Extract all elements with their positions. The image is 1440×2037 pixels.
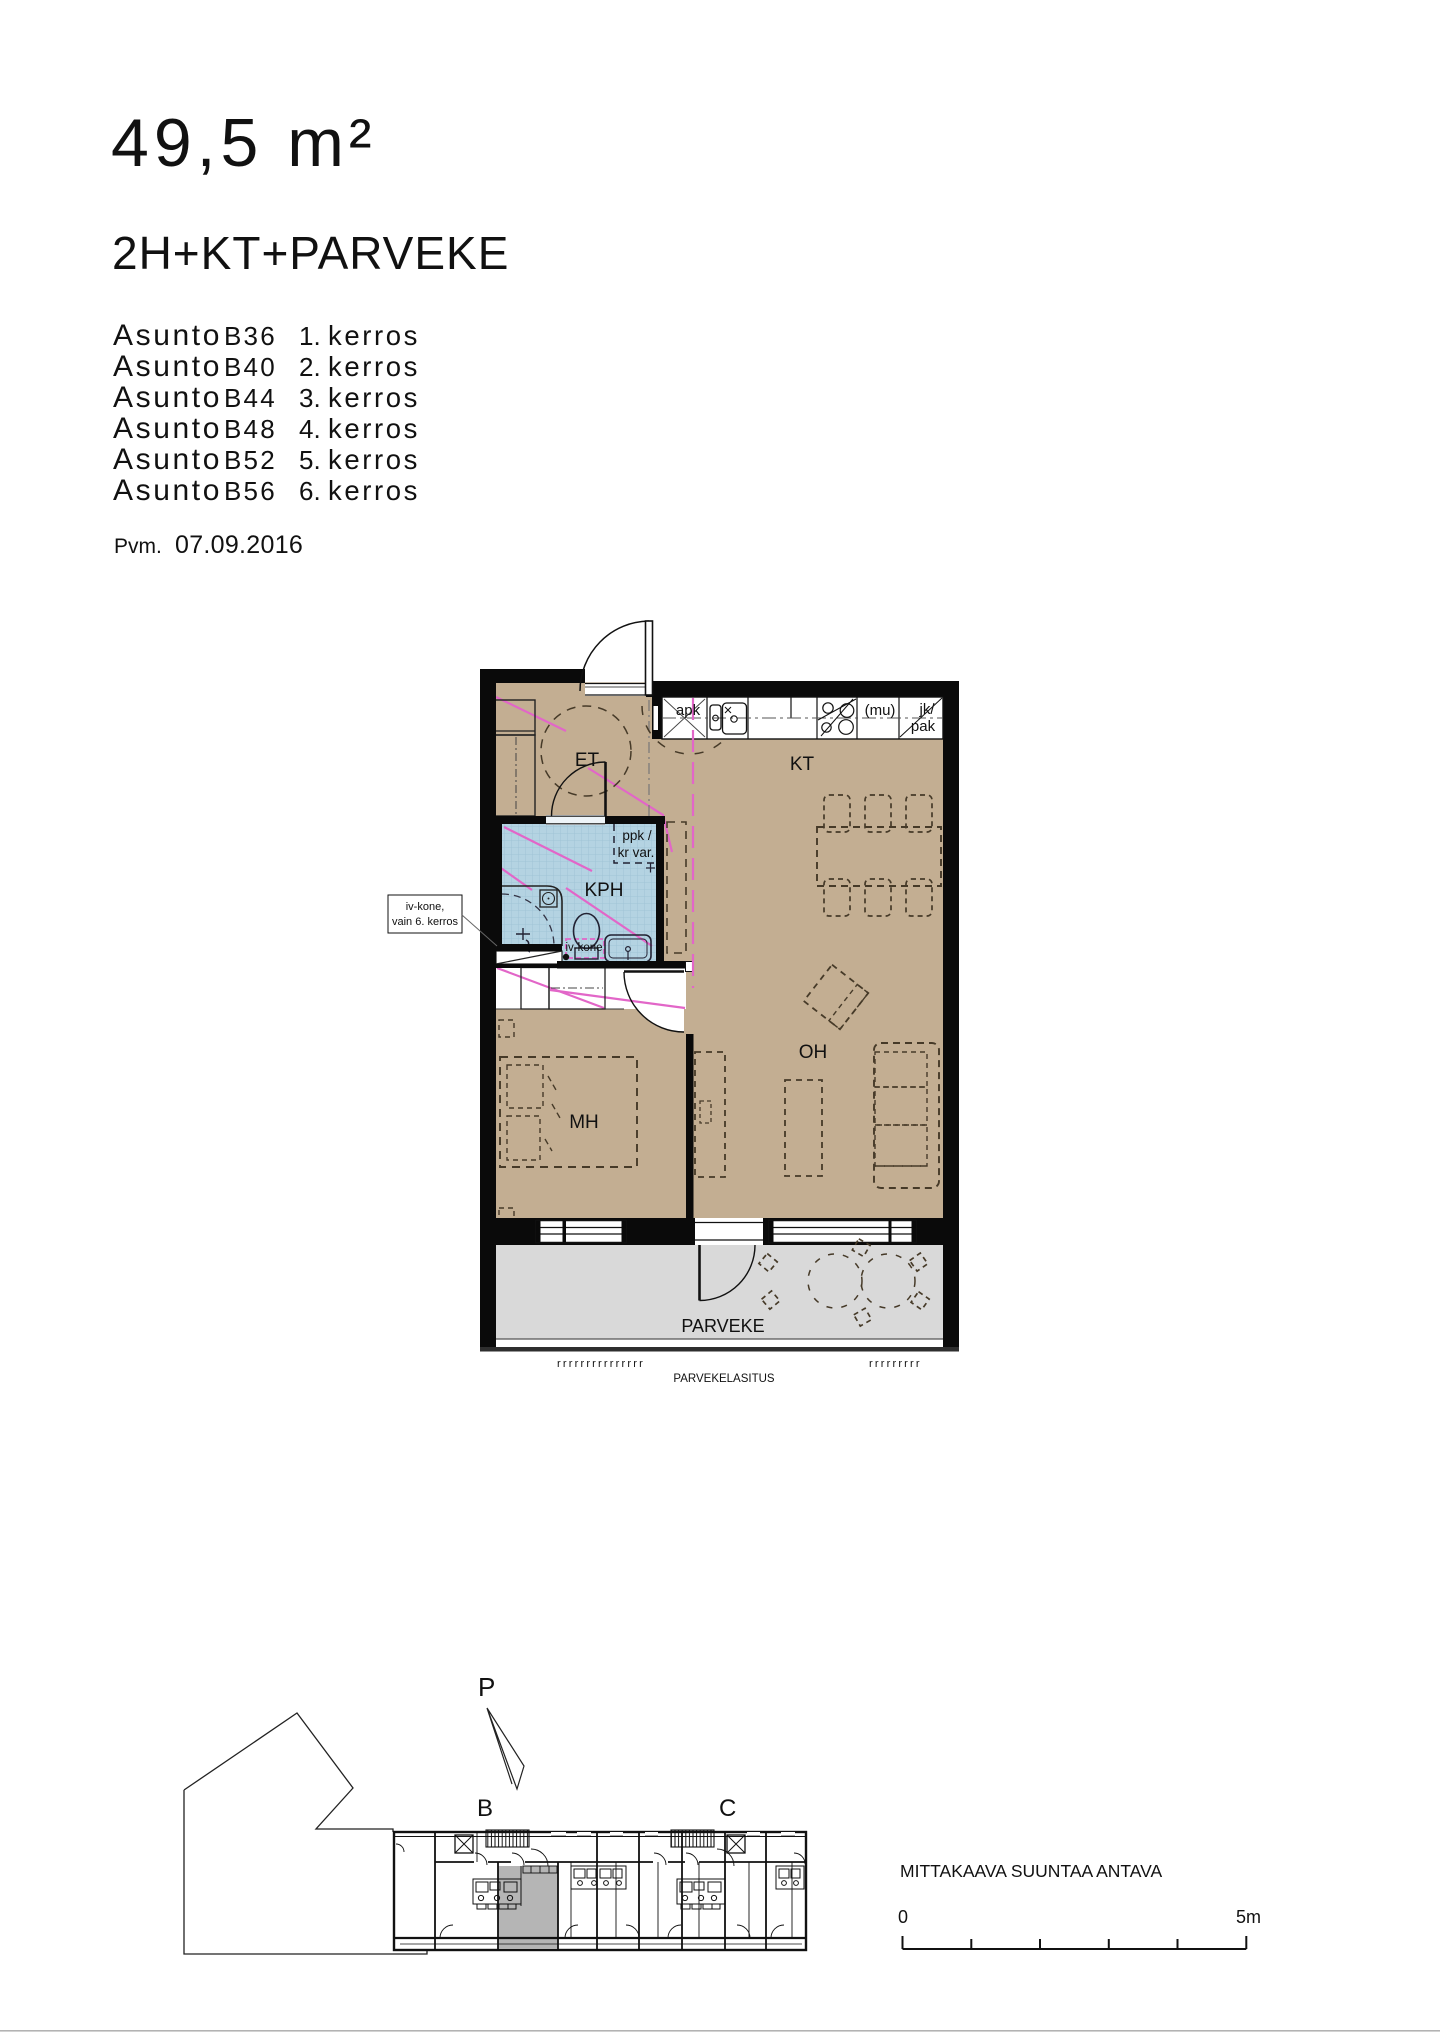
svg-text:vain 6. kerros: vain 6. kerros bbox=[392, 916, 459, 928]
svg-text:1.: 1. bbox=[299, 321, 321, 351]
svg-text:kerros: kerros bbox=[328, 351, 420, 382]
svg-text:Asunto: Asunto bbox=[113, 319, 222, 352]
svg-text:kerros: kerros bbox=[328, 320, 420, 351]
svg-text:Asunto: Asunto bbox=[113, 474, 222, 507]
svg-text:kr var.: kr var. bbox=[618, 845, 655, 860]
svg-text:B40: B40 bbox=[224, 352, 277, 382]
svg-text:rrrrrrrrrrrrrrr: rrrrrrrrrrrrrrr bbox=[557, 1358, 645, 1370]
svg-text:B56: B56 bbox=[224, 476, 277, 506]
svg-text:(mu): (mu) bbox=[865, 702, 896, 719]
svg-text:iv-kone: iv-kone bbox=[565, 942, 602, 954]
svg-text:apk: apk bbox=[676, 702, 701, 719]
svg-text:PARVEKELASITUS: PARVEKELASITUS bbox=[673, 1373, 775, 1385]
svg-text:kerros: kerros bbox=[328, 413, 420, 444]
svg-text:B48: B48 bbox=[224, 414, 277, 444]
svg-text:0: 0 bbox=[898, 1907, 908, 1927]
svg-text:P: P bbox=[478, 1672, 495, 1702]
svg-text:jk/: jk/ bbox=[919, 701, 936, 718]
svg-text:PARVEKE: PARVEKE bbox=[681, 1316, 764, 1336]
svg-text:2.: 2. bbox=[299, 352, 321, 382]
svg-text:pak: pak bbox=[911, 718, 936, 735]
svg-text:OH: OH bbox=[799, 1042, 828, 1063]
svg-text:KT: KT bbox=[790, 754, 815, 775]
svg-text:5.: 5. bbox=[299, 445, 321, 475]
svg-text:C: C bbox=[719, 1795, 736, 1822]
svg-text:ET: ET bbox=[575, 750, 600, 771]
svg-text:B36: B36 bbox=[224, 321, 277, 351]
svg-text:B: B bbox=[477, 1795, 493, 1822]
svg-text:ppk /: ppk / bbox=[622, 828, 652, 843]
svg-text:B44: B44 bbox=[224, 383, 277, 413]
svg-text:Asunto: Asunto bbox=[113, 381, 222, 414]
svg-text:kerros: kerros bbox=[328, 475, 420, 506]
svg-text:iv-kone,: iv-kone, bbox=[406, 901, 445, 913]
svg-text:07.09.2016: 07.09.2016 bbox=[175, 531, 303, 559]
svg-text:Asunto: Asunto bbox=[113, 412, 222, 445]
svg-text:Pvm.: Pvm. bbox=[114, 535, 162, 558]
svg-text:rrrrrrrrr: rrrrrrrrr bbox=[869, 1358, 922, 1370]
svg-text:5m: 5m bbox=[1236, 1907, 1261, 1927]
svg-text:kerros: kerros bbox=[328, 444, 420, 475]
svg-text:B52: B52 bbox=[224, 445, 277, 475]
svg-text:MITTAKAAVA SUUNTAA ANTAVA: MITTAKAAVA SUUNTAA ANTAVA bbox=[900, 1861, 1163, 1881]
svg-text:49,5 m²: 49,5 m² bbox=[111, 105, 377, 181]
svg-text:Asunto: Asunto bbox=[113, 350, 222, 383]
svg-text:KPH: KPH bbox=[584, 880, 623, 901]
svg-text:MH: MH bbox=[569, 1112, 599, 1133]
svg-text:kerros: kerros bbox=[328, 382, 420, 413]
svg-text:4.: 4. bbox=[299, 414, 321, 444]
svg-text:3.: 3. bbox=[299, 383, 321, 413]
svg-text:6.: 6. bbox=[299, 476, 321, 506]
svg-text:2H+KT+PARVEKE: 2H+KT+PARVEKE bbox=[112, 227, 509, 279]
svg-text:Asunto: Asunto bbox=[113, 443, 222, 476]
